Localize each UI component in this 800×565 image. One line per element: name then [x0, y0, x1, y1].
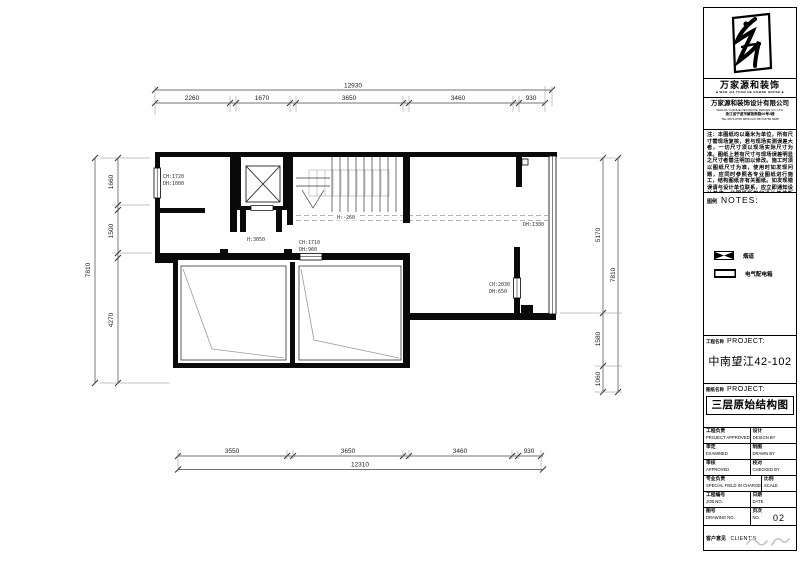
- project-label-en: PROJECT:: [727, 338, 765, 345]
- dim-right-1: 5170: [595, 227, 602, 242]
- dim-top-5: 930: [526, 95, 537, 102]
- brand-block: 万家源和装饰 ■ WAN JIA YUAN HE GOODE HOUSE ■: [704, 79, 796, 98]
- project-section: 工程名称 PROJECT: 中南望江42-102: [704, 336, 796, 384]
- dim-top-1: 2260: [185, 95, 200, 102]
- drawing-label-en: PROJECT:: [727, 386, 765, 393]
- drawing-name: 三层原始结构图: [706, 396, 794, 415]
- dim-top-2: 1670: [255, 95, 270, 102]
- brand-name-en: ■ WAN JIA YUAN HE GOODE HOUSE ■: [704, 90, 796, 94]
- client-section: 客户意见 CLIENT'S: [704, 526, 796, 552]
- project-label-zh: 工程名称: [706, 339, 724, 345]
- signature-scribble: [744, 532, 792, 550]
- legend-item-flue: 烟道: [714, 251, 754, 260]
- company-logo: [704, 8, 796, 79]
- label-stair-level: H:-260: [337, 215, 355, 221]
- label-window-right2-a: CH:2030: [489, 282, 510, 288]
- approval-table: 工程负责PROJECT APPROVED 设计DESIGN BY 审定EXAMI…: [704, 428, 796, 526]
- panel-symbol-icon: [714, 269, 736, 278]
- label-window-left-b: DH:1000: [163, 181, 184, 187]
- cell-en: DESIGN BY: [753, 435, 796, 441]
- table-row: 工程负责PROJECT APPROVED 设计DESIGN BY: [704, 428, 796, 444]
- brand-name-zh: 万家源和装饰: [704, 80, 796, 90]
- cell-en: NO.: [753, 515, 763, 521]
- plan-annotations: CH:1720 DH:1000 H:3050 CH:1710 DH:960 H:…: [163, 174, 544, 295]
- dimension-labels: 12930 2260 1670 3650 3460 930 3550 3650 …: [85, 83, 617, 469]
- label-window-mid-a: CH:1710: [299, 240, 320, 246]
- company-info: 万家源和装饰设计有限公司 WANJIA YUANHE DECORATE DESI…: [704, 98, 796, 130]
- legend-item-label: 电气配电箱: [745, 270, 773, 278]
- dim-bottom-2: 3650: [341, 448, 356, 455]
- legend-title-zh: 图例: [707, 198, 717, 205]
- notes-paragraph: 注：本图纸均以毫米为单位，所有尺寸需现场复核，若与现场实测误差大者，一切尺寸须以…: [707, 132, 793, 193]
- legend-title-en: NOTES:: [721, 195, 759, 205]
- extension-lines: [100, 86, 622, 472]
- drawing-label-row: 图纸名称 PROJECT:: [704, 384, 796, 393]
- dim-bottom-1: 3550: [225, 448, 240, 455]
- cell-en: DRAWING NO.: [706, 515, 750, 521]
- dim-left-3: 4270: [108, 312, 115, 327]
- dim-right-3: 1060: [595, 371, 602, 386]
- dimension-ticks: [92, 87, 621, 473]
- table-row: 审核APPROVED 校对CHECKED BY: [704, 460, 796, 476]
- client-label-zh: 客户意见: [706, 536, 726, 542]
- project-label-row: 工程名称 PROJECT:: [704, 336, 796, 345]
- floor-plan-canvas: 12930 2260 1670 3650 3460 930 3550 3650 …: [0, 0, 800, 565]
- logo-calligraphy-icon: [724, 11, 776, 75]
- flue-symbol-icon: [714, 251, 734, 260]
- legend-item-label: 烟道: [743, 252, 754, 260]
- dim-top-3: 3650: [342, 95, 357, 102]
- cell-en: CHECKED BY: [753, 467, 797, 473]
- label-window-right: DH:1300: [523, 222, 544, 228]
- cad-sheet: 12930 2260 1670 3650 3460 930 3550 3650 …: [0, 0, 800, 565]
- cell-en: SCALE: [764, 483, 796, 489]
- void-dashed-lines: [296, 216, 548, 221]
- dim-left-2: 1500: [108, 223, 115, 238]
- cell-en: EXAMINED: [706, 451, 750, 457]
- notes-section: 注：本图纸均以毫米为单位，所有尺寸需现场复核，若与现场实测误差大者，一切尺寸须以…: [704, 130, 796, 193]
- dim-right-overall: 7810: [610, 267, 617, 282]
- table-row: 审定EXAMINED 制图DRAWN BY: [704, 444, 796, 460]
- label-hall-height: H:3050: [247, 237, 265, 243]
- company-phone: TEL:0574-8766 6666 FAX:0574-8766 6688: [704, 117, 796, 121]
- stair-direction-arrow: [302, 190, 324, 208]
- dim-left-overall: 7810: [85, 262, 92, 277]
- elevator-door: [251, 206, 273, 211]
- label-window-left-a: CH:1720: [163, 174, 184, 180]
- cell-en: DATE: [753, 499, 797, 505]
- dim-bottom-overall: 12310: [351, 462, 369, 469]
- dim-bottom-4: 930: [524, 448, 535, 455]
- dim-top-4: 3460: [451, 95, 466, 102]
- drawing-label-zh: 图纸名称: [706, 387, 724, 393]
- table-row: 工程编号JOB NO. 日期DATE: [704, 492, 796, 508]
- legend-item-panel: 电气配电箱: [714, 269, 773, 278]
- cell-en: PROJECT APPROVED: [706, 435, 750, 441]
- table-row: 专业负责SPECIAL FIELD IN CHARGE 比例SCALE: [704, 476, 796, 492]
- table-row: 图号DRAWING NO. 页次NO. 02: [704, 508, 796, 526]
- legend-section: 图例 NOTES: 烟道 电气配电箱: [704, 193, 796, 336]
- stair-gray-detail: [309, 170, 389, 196]
- page-number: 02: [762, 509, 796, 526]
- dim-top-overall: 12930: [344, 83, 362, 90]
- drawing-section: 图纸名称 PROJECT: 三层原始结构图: [704, 384, 796, 428]
- wall-notch: [522, 159, 528, 165]
- project-name: 中南望江42-102: [704, 353, 796, 369]
- cell-en: JOB NO.: [706, 499, 750, 505]
- dim-left-1: 1660: [108, 174, 115, 189]
- dim-right-2: 1580: [595, 331, 602, 346]
- legend-header: 图例 NOTES:: [707, 195, 793, 205]
- label-window-right2-b: DH:650: [489, 289, 507, 295]
- dim-bottom-3: 3460: [453, 448, 468, 455]
- cell-en: DRAWN BY: [753, 451, 797, 457]
- company-name-zh: 万家源和装饰设计有限公司: [704, 100, 796, 108]
- elevator-car: [246, 166, 280, 202]
- cell-en: SPECIAL FIELD IN CHARGE: [706, 483, 761, 489]
- cell-en: APPROVED: [706, 467, 750, 473]
- label-window-mid-b: DH:960: [299, 247, 317, 253]
- title-block: 万家源和装饰 ■ WAN JIA YUAN HE GOODE HOUSE ■ 万…: [703, 7, 797, 551]
